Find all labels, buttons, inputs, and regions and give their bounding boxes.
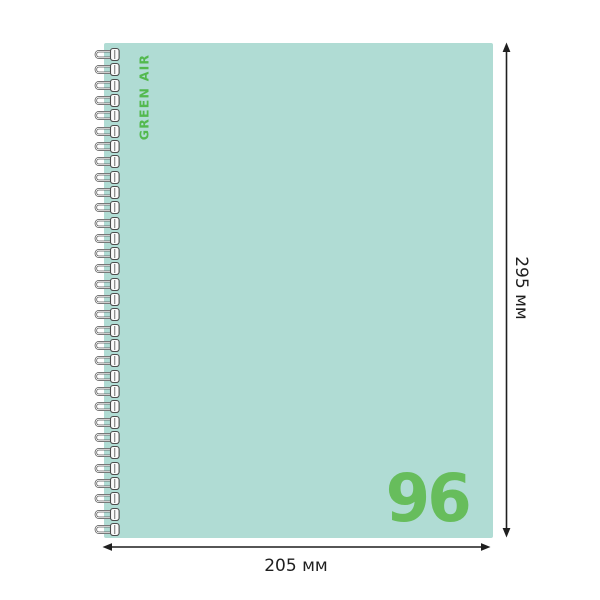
spiral-binding (93, 47, 120, 538)
wire-loop (93, 246, 120, 261)
wire-loop (93, 139, 120, 154)
wire-loop (93, 185, 120, 200)
wire-loop (93, 108, 120, 123)
wire-loop (93, 62, 120, 77)
dimension-width-line (103, 543, 491, 551)
wire-loop (93, 93, 120, 108)
notebook-cover: GREEN AIR 96 (104, 43, 493, 538)
wire-loop (93, 47, 120, 62)
wire-loop (93, 261, 120, 276)
wire-loop (93, 445, 120, 460)
brand-logo-text: GREEN AIR (137, 54, 152, 141)
wire-loop (93, 415, 120, 430)
product-image: GREEN AIR 96 295 мм 205 мм (0, 0, 600, 600)
wire-loop (93, 399, 120, 414)
wire-loop (93, 231, 120, 246)
wire-loop (93, 323, 120, 338)
wire-loop (93, 369, 120, 384)
dimension-height-label: 295 мм (511, 256, 531, 320)
wire-loop (93, 292, 120, 307)
wire-loop (93, 200, 120, 215)
wire-loop (93, 170, 120, 185)
dimension-width-label: 205 мм (264, 556, 328, 576)
sheet-count: 96 (386, 475, 469, 523)
wire-loop (93, 307, 120, 322)
wire-loop (93, 216, 120, 231)
wire-loop (93, 353, 120, 368)
wire-loop (93, 461, 120, 476)
wire-loop (93, 491, 120, 506)
wire-loop (93, 338, 120, 353)
wire-loop (93, 154, 120, 169)
wire-loop (93, 124, 120, 139)
wire-loop (93, 507, 120, 522)
dimension-height-line (503, 43, 511, 538)
wire-loop (93, 522, 120, 537)
wire-loop (93, 78, 120, 93)
wire-loop (93, 476, 120, 491)
wire-loop (93, 430, 120, 445)
wire-loop (93, 384, 120, 399)
wire-loop (93, 277, 120, 292)
